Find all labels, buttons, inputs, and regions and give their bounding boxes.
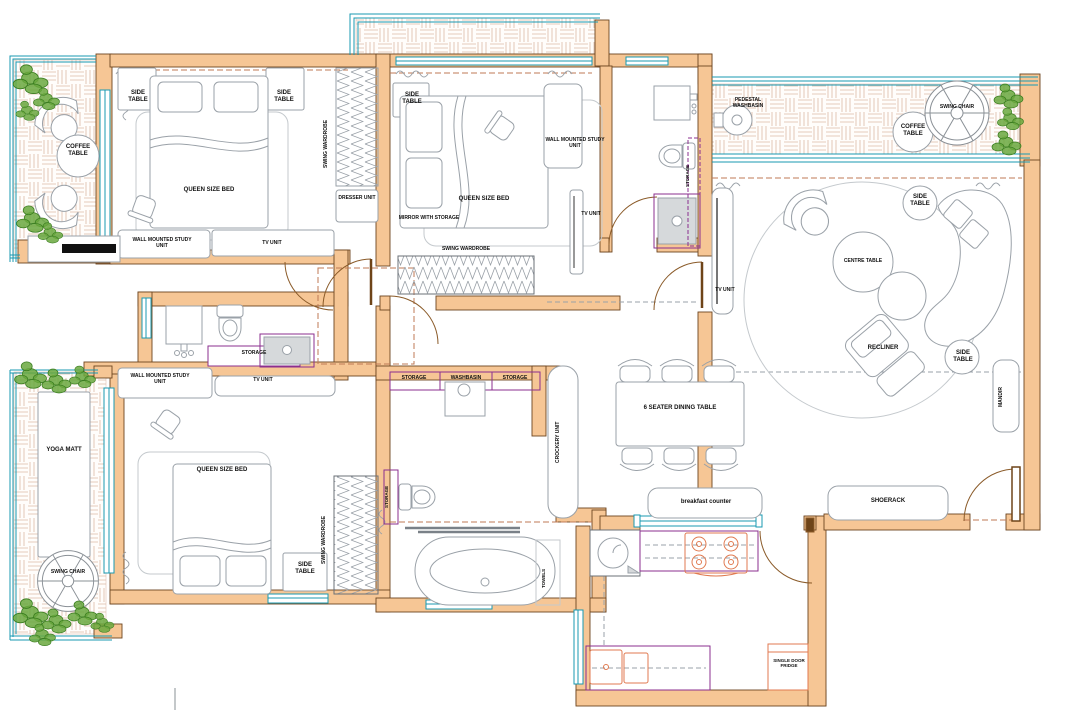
label-washbasin-b3: WASHBASIN <box>440 376 492 382</box>
label-queen-bed-2: QUEEN SIZE BED <box>414 196 554 203</box>
bedroom-top-middle-furniture <box>393 83 602 294</box>
wardrobe <box>334 476 378 594</box>
label-crockery-unit: CROCKERY UNIT <box>556 402 561 482</box>
entry-door-arc <box>964 469 1016 521</box>
study-unit <box>544 84 582 168</box>
washbasin <box>445 382 485 416</box>
label-study-unit-3: WALL MOUNTED STUDY UNIT <box>126 374 194 386</box>
label-storage-b3-left: STORAGE <box>390 376 438 382</box>
recliner <box>842 311 928 400</box>
washbasin <box>166 306 202 344</box>
label-wardrobe-2: SWING WARDROBE <box>421 247 511 253</box>
label-swing-chair-2: SWING CHAIR <box>47 570 89 576</box>
hob <box>685 533 747 576</box>
label-storage-b3-right: STORAGE <box>492 376 538 382</box>
toilet <box>399 484 435 510</box>
label-dresser: DRESSER UNIT <box>335 196 379 202</box>
label-side-table-5: SIDE TABLE <box>946 350 980 364</box>
centre-table <box>878 272 926 320</box>
label-side-table-3: SIDE TABLE <box>395 92 429 106</box>
label-side-table-2: SIDE TABLE <box>267 90 301 104</box>
label-recliner: RECLINER <box>852 345 914 352</box>
label-wardrobe-1: SWING WARDROBE <box>324 98 329 190</box>
bedroom-top-left-furniture <box>118 68 378 258</box>
shower-screen <box>405 528 520 532</box>
label-storage-bath-mid: STORAGE <box>210 351 298 357</box>
bedroom-bottom-left-furniture <box>118 368 378 594</box>
tv-unit <box>570 190 583 274</box>
label-queen-bed-3: QUEEN SIZE BED <box>162 467 282 474</box>
swing-chair <box>38 551 99 612</box>
label-dining-table: 6 SEATER DINING TABLE <box>618 405 742 412</box>
label-study-unit-2: WALL MOUNTED STUDY UNIT <box>544 138 606 150</box>
label-side-table-6: SIDE TABLE <box>288 562 322 576</box>
label-queen-bed-1: QUEEN SIZE BED <box>154 187 264 194</box>
yoga-matt <box>38 392 90 557</box>
toilet <box>217 305 243 341</box>
lounge-chair <box>782 187 831 236</box>
bathroom-top-fixtures <box>654 86 700 248</box>
label-mandir: MANDIR <box>999 368 1004 426</box>
dining-table <box>616 382 744 446</box>
label-side-table-4: SIDE TABLE <box>903 194 937 208</box>
washbasin <box>654 86 690 120</box>
label-towels: TOWELS <box>542 554 547 602</box>
dining-furniture <box>548 360 762 519</box>
label-tv-unit-living: TV UNIT <box>712 288 738 294</box>
crockery-unit <box>548 366 578 518</box>
label-fridge: SINGLE DOOR FRIDGE <box>770 658 808 669</box>
tv-unit <box>712 188 733 314</box>
label-breakfast-counter: breakfast counter <box>650 499 762 506</box>
label-centre-table: CENTRE TABLE <box>832 259 894 265</box>
label-pedestal-washbasin: PEDESTAL WASHBASIN <box>720 98 776 110</box>
floor-plan-drawing <box>0 0 1066 712</box>
label-study-unit-1: WALL MOUNTED STUDY UNIT <box>126 238 198 250</box>
label-swing-chair-1: SWING CHAIR <box>936 105 978 111</box>
label-tv-unit-1: TV UNIT <box>240 241 304 247</box>
label-wardrobe-3: SWING WARDROBE <box>322 492 327 588</box>
label-tv-unit-2: TV UNIT <box>578 212 604 218</box>
label-coffee-table-2: COFFEE TABLE <box>891 124 935 138</box>
wardrobe <box>336 68 378 186</box>
seat-block <box>62 244 116 253</box>
entry-door-leaf <box>1012 467 1020 521</box>
label-storage-b3-side: STORAGE <box>385 472 390 522</box>
wardrobe <box>398 256 534 294</box>
label-shoerack: SHOERACK <box>840 498 936 505</box>
label-storage-bath-top: STORAGE <box>686 140 691 212</box>
sink <box>590 650 648 684</box>
label-yoga-matt: YOGA MATT <box>46 447 82 454</box>
bathtub <box>415 537 555 605</box>
label-coffee-table-1: COFFEE TABLE <box>56 144 100 158</box>
bathroom-middle-fixtures <box>166 305 314 367</box>
floor-plan: COFFEE TABLE SIDE TABLE SIDE TABLE QUEEN… <box>0 0 1066 712</box>
label-side-table-1: SIDE TABLE <box>121 90 155 104</box>
mandir <box>993 360 1019 432</box>
label-tv-unit-3: TV UNIT <box>250 378 276 384</box>
label-mirror-storage: MIRROR WITH STORAGE <box>396 216 462 222</box>
